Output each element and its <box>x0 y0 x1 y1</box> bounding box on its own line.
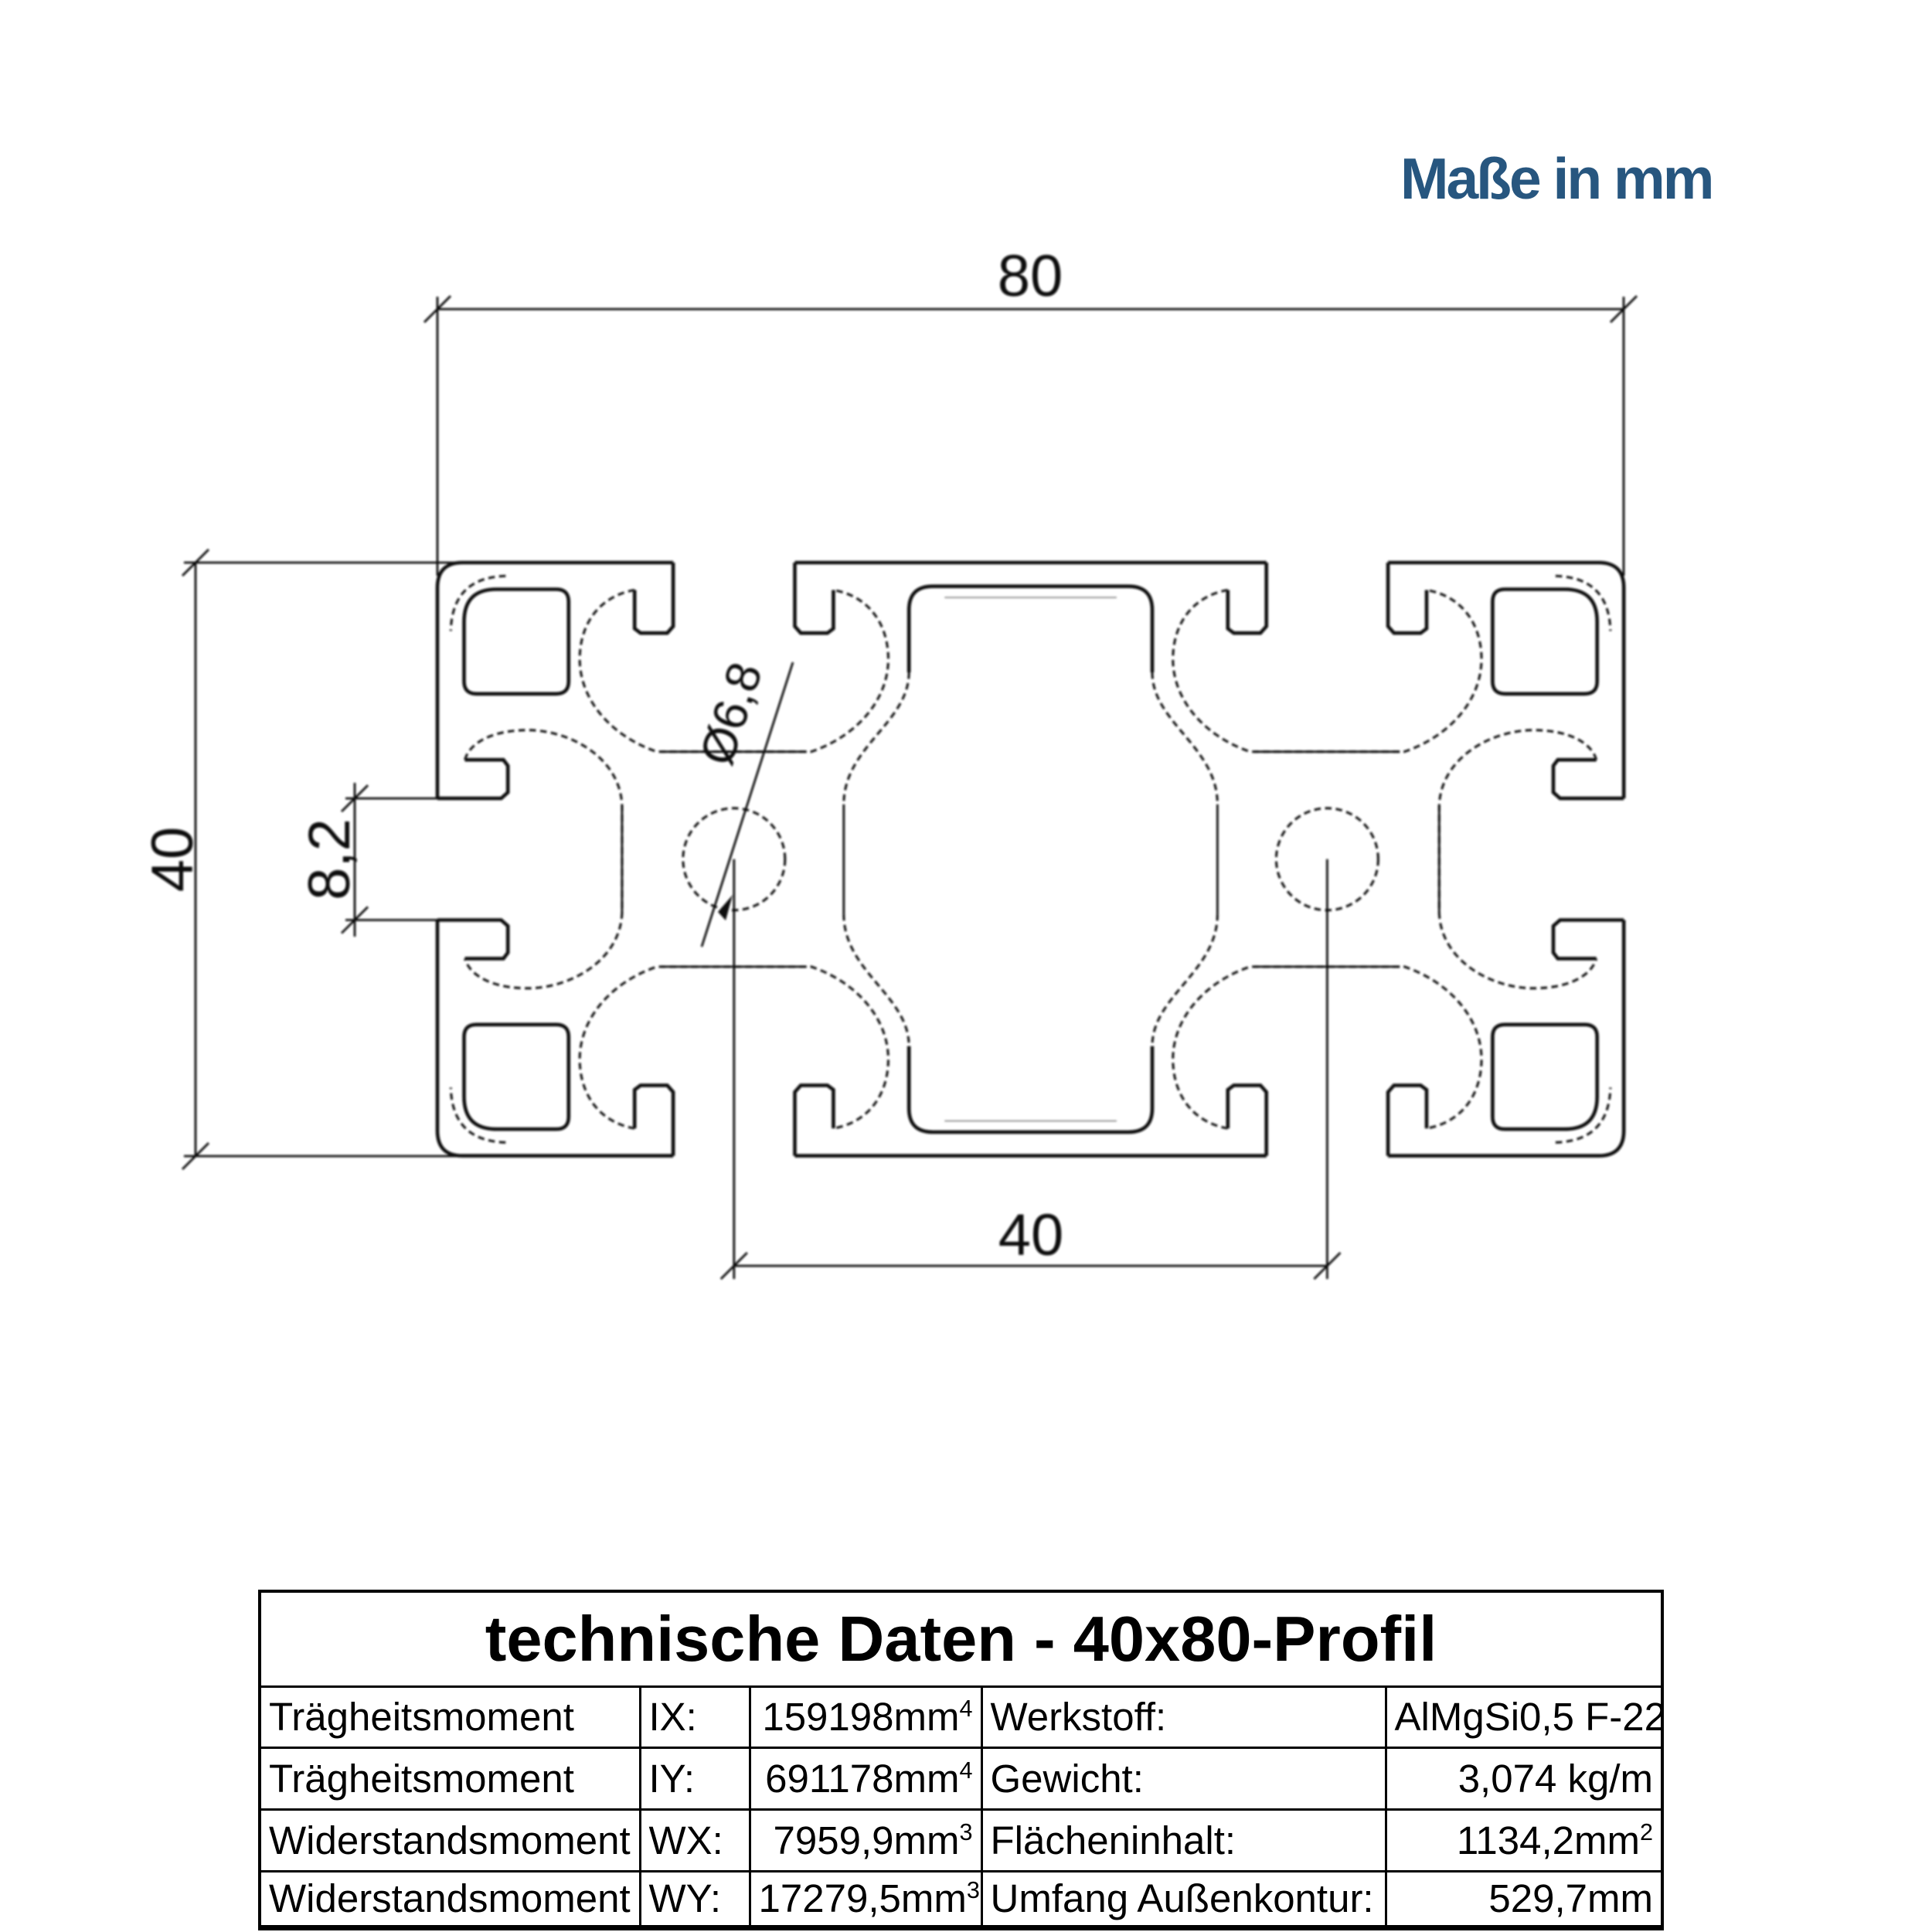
svg-text:Ø6,8: Ø6,8 <box>690 656 773 771</box>
svg-text:8,2: 8,2 <box>297 818 362 900</box>
svg-text:80: 80 <box>998 243 1063 309</box>
svg-text:40: 40 <box>140 827 206 893</box>
svg-text:40: 40 <box>998 1202 1064 1268</box>
